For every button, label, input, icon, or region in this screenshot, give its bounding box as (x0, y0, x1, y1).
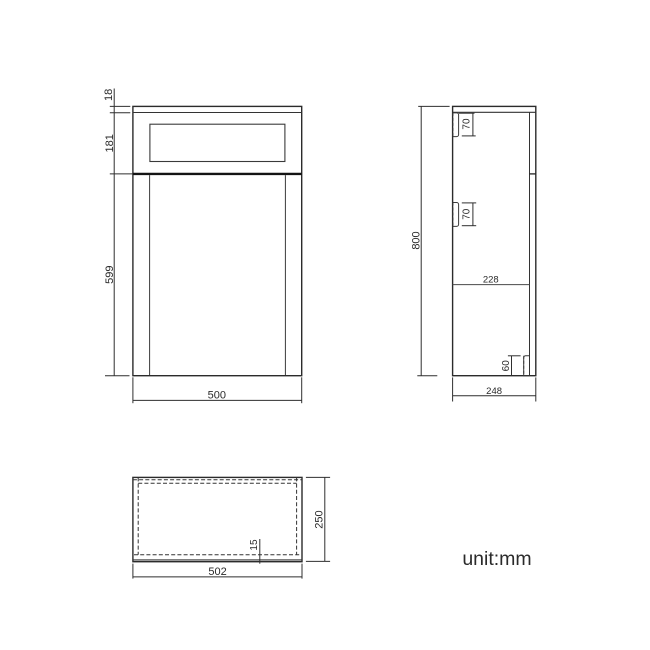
svg-text:248: 248 (486, 386, 502, 397)
svg-text:unit:mm: unit:mm (462, 548, 531, 570)
svg-text:250: 250 (313, 510, 325, 528)
svg-text:228: 228 (483, 274, 499, 285)
svg-text:60: 60 (501, 360, 512, 372)
svg-text:70: 70 (462, 208, 473, 220)
svg-text:502: 502 (208, 566, 226, 578)
svg-text:18: 18 (103, 89, 115, 101)
svg-text:70: 70 (462, 118, 473, 130)
svg-text:800: 800 (410, 231, 422, 249)
svg-text:181: 181 (104, 134, 116, 152)
svg-text:15: 15 (249, 539, 260, 551)
svg-text:500: 500 (208, 390, 226, 402)
svg-text:599: 599 (104, 266, 116, 284)
